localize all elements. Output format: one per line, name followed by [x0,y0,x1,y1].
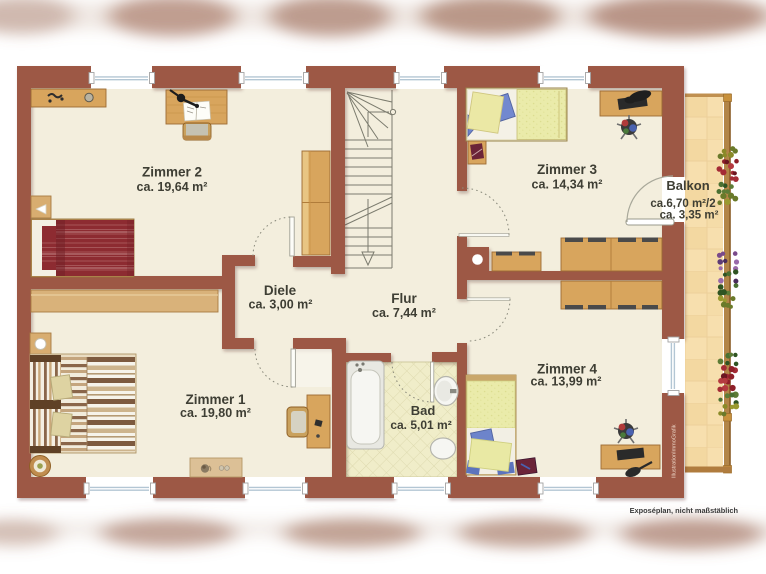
svg-text:Flur: Flur [391,291,417,306]
svg-text:ca. 19,80 m²: ca. 19,80 m² [180,406,251,420]
svg-text:Zimmer 2: Zimmer 2 [142,165,202,180]
svg-text:Bad: Bad [411,403,436,418]
svg-text:IllustrationImmoGrafik: IllustrationImmoGrafik [672,424,678,478]
svg-text:ca. 3,00 m²: ca. 3,00 m² [249,298,313,312]
svg-text:Zimmer 3: Zimmer 3 [537,162,598,177]
svg-text:ca. 19,64 m²: ca. 19,64 m² [137,180,208,194]
svg-text:ca.6,70 m²/2: ca.6,70 m²/2 [650,198,715,210]
svg-text:Diele: Diele [264,283,297,298]
svg-text:ca. 7,44 m²: ca. 7,44 m² [372,306,436,320]
svg-text:Balkon: Balkon [666,178,709,193]
svg-text:Exposéplan, nicht maßstäblich: Exposéplan, nicht maßstäblich [630,506,739,515]
svg-text:ca. 3,35 m²: ca. 3,35 m² [660,210,719,222]
svg-text:ca. 13,99 m²: ca. 13,99 m² [531,375,602,389]
svg-text:Zimmer 1: Zimmer 1 [185,392,246,407]
svg-text:ca. 14,34 m²: ca. 14,34 m² [532,178,603,192]
svg-text:ca. 5,01 m²: ca. 5,01 m² [390,418,451,432]
